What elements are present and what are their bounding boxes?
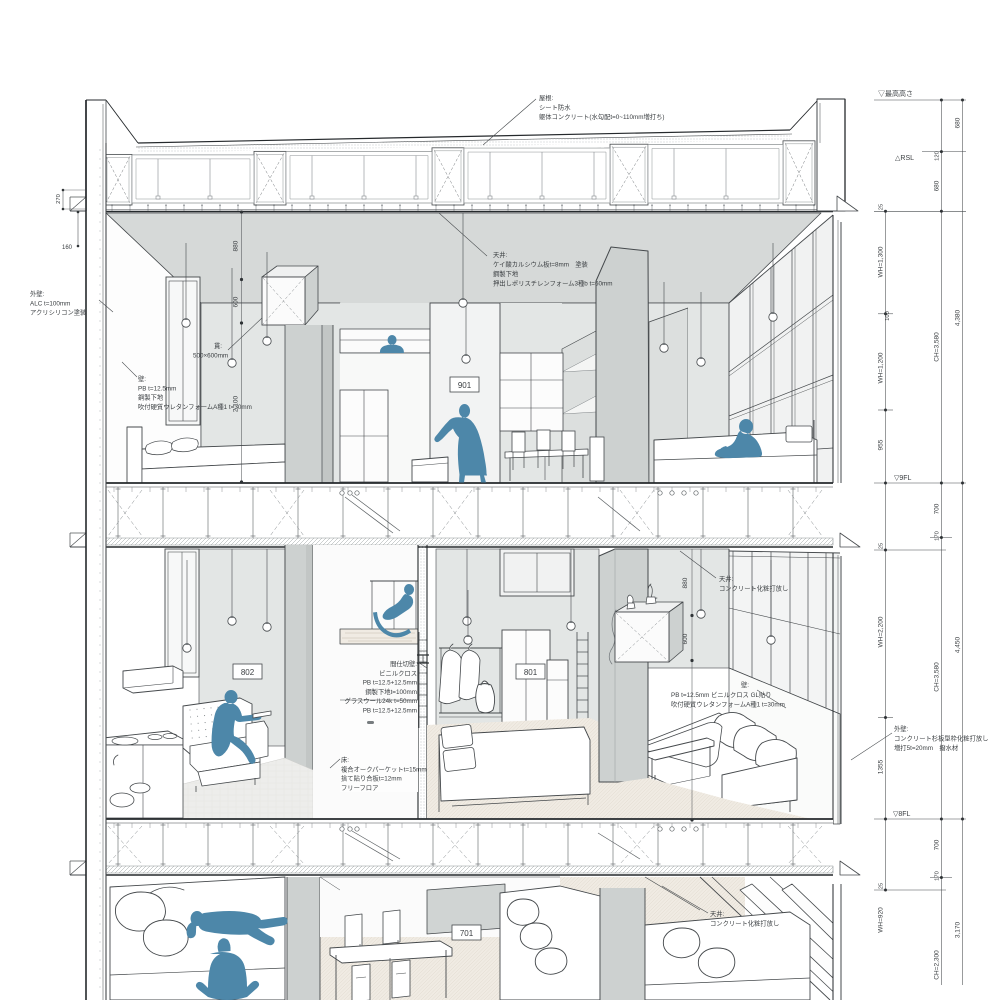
svg-text:アクリシリコン塗装: アクリシリコン塗装 <box>30 308 87 317</box>
svg-text:吹付硬質ウレタンフォームA種1 t=30mm: 吹付硬質ウレタンフォームA種1 t=30mm <box>671 699 785 708</box>
svg-text:壁:: 壁: <box>138 374 146 383</box>
svg-text:100: 100 <box>885 311 891 321</box>
svg-text:802: 802 <box>241 668 255 677</box>
svg-text:▽8FL: ▽8FL <box>893 811 911 818</box>
svg-text:グラスウール24k t=50mm: グラスウール24k t=50mm <box>345 696 417 705</box>
svg-text:△RSL: △RSL <box>895 155 914 162</box>
svg-text:WH=2,200: WH=2,200 <box>878 616 885 647</box>
svg-text:ケイ酸カルシウム板t=8mm 塗装: ケイ酸カルシウム板t=8mm 塗装 <box>493 260 589 269</box>
svg-text:押出しポリスチレンフォーム3種b t=60mm: 押出しポリスチレンフォーム3種b t=60mm <box>493 279 612 288</box>
svg-text:600: 600 <box>233 296 240 307</box>
svg-text:増打5t=20mm 撥水材: 増打5t=20mm 撥水材 <box>894 743 959 752</box>
svg-text:600: 600 <box>682 633 689 644</box>
svg-text:WH=920: WH=920 <box>878 907 885 933</box>
svg-text:捨て貼り合板t=12mm: 捨て貼り合板t=12mm <box>341 774 402 783</box>
svg-text:CH=3,580: CH=3,580 <box>933 662 940 692</box>
svg-text:CH=2,300: CH=2,300 <box>933 950 940 980</box>
svg-text:コンクリート化粧打放し: コンクリート化粧打放し <box>719 584 788 593</box>
svg-text:25: 25 <box>879 204 885 210</box>
svg-text:PB t=12.5+12.5mm: PB t=12.5+12.5mm <box>363 708 417 715</box>
svg-text:25: 25 <box>879 883 885 889</box>
svg-text:701: 701 <box>460 929 474 938</box>
svg-text:170: 170 <box>934 531 940 541</box>
svg-text:700: 700 <box>933 503 940 514</box>
svg-text:955: 955 <box>878 439 885 450</box>
svg-text:床:: 床: <box>341 755 349 764</box>
svg-text:間仕切壁:: 間仕切壁: <box>390 659 417 668</box>
svg-text:吹付硬質ウレタンフォームA種1 t=30mm: 吹付硬質ウレタンフォームA種1 t=30mm <box>138 402 252 411</box>
svg-text:貫:: 貫: <box>214 342 222 350</box>
svg-text:25: 25 <box>879 543 885 549</box>
svg-text:WH=1,300: WH=1,300 <box>878 246 885 277</box>
svg-text:170: 170 <box>934 871 940 881</box>
svg-text:PB t=12.5+12.5mm: PB t=12.5+12.5mm <box>363 680 417 687</box>
svg-text:外壁:: 外壁: <box>894 724 909 733</box>
svg-text:901: 901 <box>458 381 472 390</box>
svg-text:680: 680 <box>933 180 940 191</box>
svg-text:フリーフロア: フリーフロア <box>341 784 378 792</box>
svg-text:ALC t=100mm: ALC t=100mm <box>30 300 70 307</box>
svg-text:天井:: 天井: <box>710 909 725 918</box>
svg-text:PB t=12.5mm ビニルクロス GL貼り: PB t=12.5mm ビニルクロス GL貼り <box>671 690 772 699</box>
svg-text:天井:: 天井: <box>493 250 508 259</box>
svg-text:680: 680 <box>955 117 962 128</box>
svg-text:CH=3,580: CH=3,580 <box>933 332 940 362</box>
svg-text:鋼製下地: 鋼製下地 <box>493 269 519 278</box>
svg-text:シート防水: シート防水 <box>539 103 571 112</box>
svg-text:1355: 1355 <box>878 759 885 774</box>
svg-text:4,450: 4,450 <box>955 636 962 653</box>
svg-text:880: 880 <box>682 577 689 588</box>
svg-text:120: 120 <box>934 151 940 161</box>
svg-text:3,170: 3,170 <box>955 921 962 938</box>
svg-text:鋼製下地t=100mm: 鋼製下地t=100mm <box>365 687 417 696</box>
svg-text:複合オークパーケットt=15mm: 複合オークパーケットt=15mm <box>341 764 427 773</box>
svg-text:▽9FL: ▽9FL <box>894 475 912 482</box>
svg-text:700: 700 <box>933 839 940 850</box>
svg-text:160: 160 <box>62 245 73 251</box>
svg-text:801: 801 <box>524 668 538 677</box>
svg-text:壁:: 壁: <box>741 680 749 689</box>
svg-text:躯体コンクリート(水勾配t=0~110mm増打ち): 躯体コンクリート(水勾配t=0~110mm増打ち) <box>539 112 665 121</box>
svg-text:コンクリート化粧打放し: コンクリート化粧打放し <box>710 919 779 928</box>
svg-text:PB t=12.5mm: PB t=12.5mm <box>138 385 176 392</box>
svg-text:コンクリート杉板型枠化粧打放し: コンクリート杉板型枠化粧打放し <box>894 734 988 743</box>
svg-text:270: 270 <box>56 194 62 204</box>
svg-text:WH=1,200: WH=1,200 <box>878 352 885 383</box>
svg-text:880: 880 <box>233 240 240 251</box>
svg-text:500×600mm: 500×600mm <box>193 353 228 360</box>
svg-text:屋根:: 屋根: <box>539 93 554 102</box>
svg-text:鋼製下地: 鋼製下地 <box>138 393 164 402</box>
svg-text:天井:: 天井: <box>719 574 734 583</box>
svg-text:▽最高高さ: ▽最高高さ <box>878 89 913 98</box>
svg-text:4,380: 4,380 <box>955 309 962 326</box>
svg-text:外壁:: 外壁: <box>30 289 45 298</box>
svg-text:ビニルクロス: ビニルクロス <box>379 668 417 677</box>
